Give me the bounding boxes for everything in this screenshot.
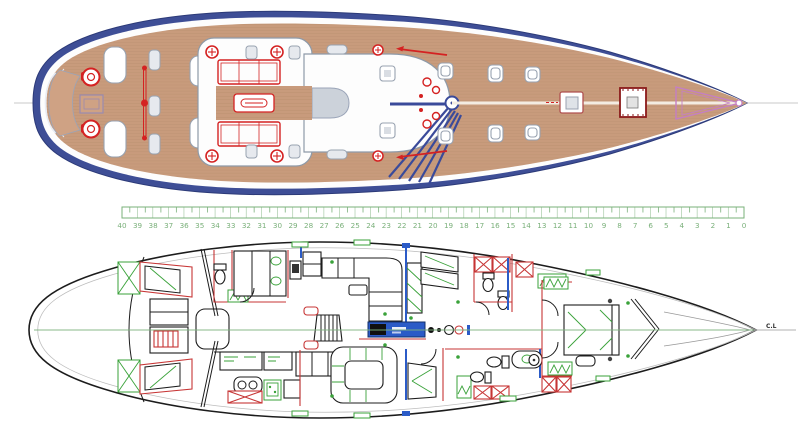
steering-wheel-port [81, 69, 100, 86]
ruler-number: 6 [648, 221, 653, 230]
ruler-number: 15 [506, 221, 515, 230]
ruler-number: 23 [382, 221, 391, 230]
ruler-number: 26 [335, 221, 345, 230]
toilet-icon [214, 264, 226, 284]
ruler-number: 40 [117, 221, 127, 230]
winch-icon [373, 151, 383, 161]
ruler-number: 34 [211, 221, 221, 230]
ruler-number: 27 [320, 221, 329, 230]
ruler-number: 12 [553, 221, 562, 230]
deckhouse [198, 38, 450, 166]
stove-icon [264, 380, 281, 400]
ruler-number: 30 [273, 221, 283, 230]
sink-icon [529, 355, 539, 366]
deck-hatch [289, 145, 300, 158]
ruler-number: 7 [633, 221, 638, 230]
ruler-number: 33 [226, 221, 235, 230]
winch-icon [271, 150, 283, 162]
foredeck-hatch [488, 125, 503, 142]
yacht-plan-page: 4039383736353433323130292827262524232221… [0, 0, 800, 444]
steering-wheel-starboard [81, 121, 100, 138]
guest-cabin-aft [234, 250, 288, 302]
ruler-number: 38 [149, 221, 159, 230]
toilet-icon [471, 372, 492, 383]
deck-hatch [246, 46, 257, 59]
toilet-icon [487, 356, 509, 368]
foredeck-hatch [438, 128, 453, 144]
cockpit-table [234, 94, 274, 112]
deck-hatch [246, 145, 257, 158]
dorade-hatch [149, 50, 160, 70]
ruler-number: 10 [584, 221, 594, 230]
aft-cabin-berth-port [140, 262, 192, 297]
ruler-number: 13 [537, 221, 546, 230]
ruler-number: 39 [133, 221, 143, 230]
ruler-number: 24 [366, 221, 376, 230]
yacht-plans-figure: 4039383736353433323130292827262524232221… [0, 0, 800, 444]
ruler-number: 28 [304, 221, 314, 230]
ruler-number: 35 [195, 221, 204, 230]
ruler-number: 14 [522, 221, 532, 230]
windlass [620, 88, 646, 117]
dinette [331, 347, 397, 403]
salon-locker [407, 263, 422, 313]
toilet-icon [483, 273, 494, 292]
ruler-number: 31 [257, 221, 266, 230]
deck-hatch [289, 46, 300, 59]
owner-bench [576, 356, 595, 366]
ruler-number: 8 [617, 221, 622, 230]
ruler-number: 20 [428, 221, 438, 230]
ruler-number: 29 [288, 221, 298, 230]
coachroof-hatch [380, 123, 395, 138]
interior-plan: C.L [29, 240, 796, 418]
aft-bench-starboard [104, 121, 126, 157]
ruler-number: 37 [164, 221, 173, 230]
companionway-slider [312, 88, 349, 118]
aft-cabin-berth-starboard [140, 359, 192, 394]
ruler-number: 1 [726, 221, 731, 230]
foredeck-hatch [525, 125, 540, 140]
winch-icon [206, 46, 218, 58]
ruler-number: 21 [413, 221, 422, 230]
ruler-number: 17 [475, 221, 484, 230]
deck-plan [14, 11, 798, 194]
aft-double-berth [196, 309, 229, 349]
ruler-number: 11 [568, 221, 577, 230]
ruler-labels: 4039383736353433323130292827262524232221… [117, 221, 746, 230]
ruler-number: 3 [695, 221, 700, 230]
ruler-number: 19 [444, 221, 454, 230]
ruler-number: 36 [180, 221, 190, 230]
winch-icon [206, 150, 218, 162]
ruler-number: 18 [460, 221, 470, 230]
ruler-number: 5 [664, 221, 669, 230]
dorade-hatch [149, 96, 160, 116]
dorade-hatch [149, 134, 160, 154]
coachroof-bench [327, 45, 347, 54]
centerline-label: C.L [766, 323, 777, 330]
coachroof-hatch [380, 66, 395, 81]
foredeck-hatch [438, 63, 453, 79]
foredeck-hatch [525, 67, 540, 82]
coachroof-bench [327, 150, 347, 159]
scale-ruler: 4039383736353433323130292827262524232221… [117, 207, 746, 230]
dinette-table [345, 361, 383, 389]
ruler-number: 32 [242, 221, 251, 230]
ruler-number: 0 [742, 221, 747, 230]
winch-icon [373, 45, 383, 55]
aft-bench-port [104, 47, 126, 83]
ruler-number: 16 [491, 221, 501, 230]
aft-table [80, 95, 103, 113]
ruler-number: 2 [711, 221, 716, 230]
ruler-number: 25 [351, 221, 360, 230]
ruler-number: 9 [602, 221, 607, 230]
ruler-bar [122, 207, 744, 218]
salon-side-table [349, 285, 367, 295]
foredeck-hatch [488, 65, 503, 82]
ruler-number: 4 [680, 221, 685, 230]
ruler-number: 22 [397, 221, 406, 230]
winch-icon [271, 46, 283, 58]
